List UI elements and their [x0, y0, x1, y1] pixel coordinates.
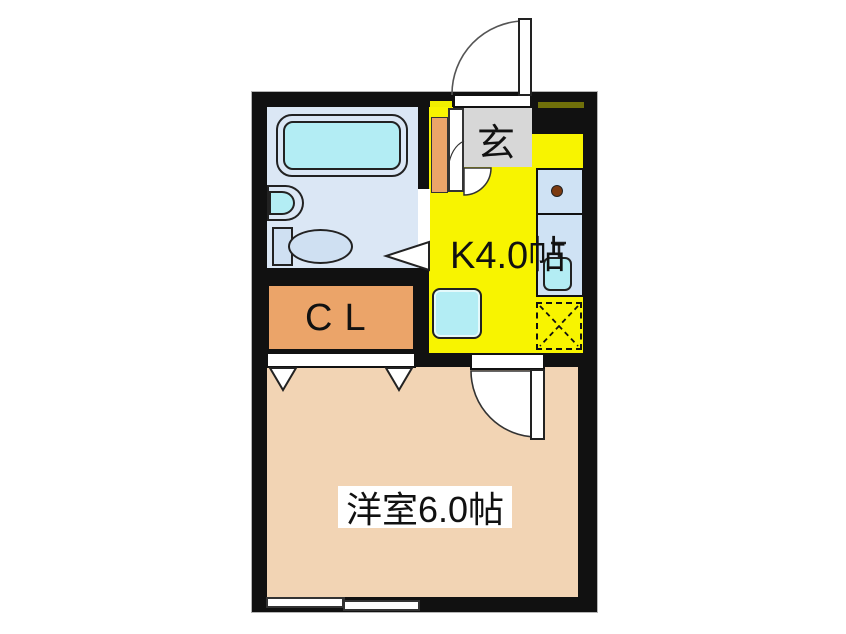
washing-machine-box — [432, 288, 482, 339]
room-door-opening — [470, 353, 545, 370]
shoe-cabinet-strip — [431, 117, 448, 193]
entrance-door-sill — [453, 94, 532, 108]
wash-basin-bowl — [269, 191, 295, 215]
refrigerator-space-dashed-box — [536, 302, 582, 350]
bathroom-door-opening — [418, 189, 430, 268]
hall-door-leaf — [448, 108, 464, 192]
bathtub-basin — [283, 121, 401, 170]
entrance-door-leaf — [519, 19, 531, 95]
sliding-window-pane-left — [266, 597, 345, 608]
kitchen-label: K4.0帖 — [450, 224, 566, 279]
room-label-band: 洋室6.0帖 — [338, 486, 512, 528]
entrance-label: 玄 — [477, 112, 515, 167]
counter-divider — [536, 213, 584, 215]
western-room-label: 洋室6.0帖 — [346, 481, 504, 533]
closet-label: CL — [305, 297, 378, 340]
wall-vent-mark-left — [430, 101, 452, 107]
sliding-window-pane-right — [343, 600, 420, 611]
entrance-door-arc — [452, 21, 524, 95]
closet-doors — [266, 352, 416, 368]
wall-corner-block — [530, 92, 597, 134]
floor-plan: 玄 K4.0帖 CL 洋室6.0帖 — [0, 0, 846, 634]
stove-burner-icon — [551, 185, 563, 197]
toilet-icon — [288, 229, 353, 264]
wall-vent-mark-right — [538, 102, 584, 108]
